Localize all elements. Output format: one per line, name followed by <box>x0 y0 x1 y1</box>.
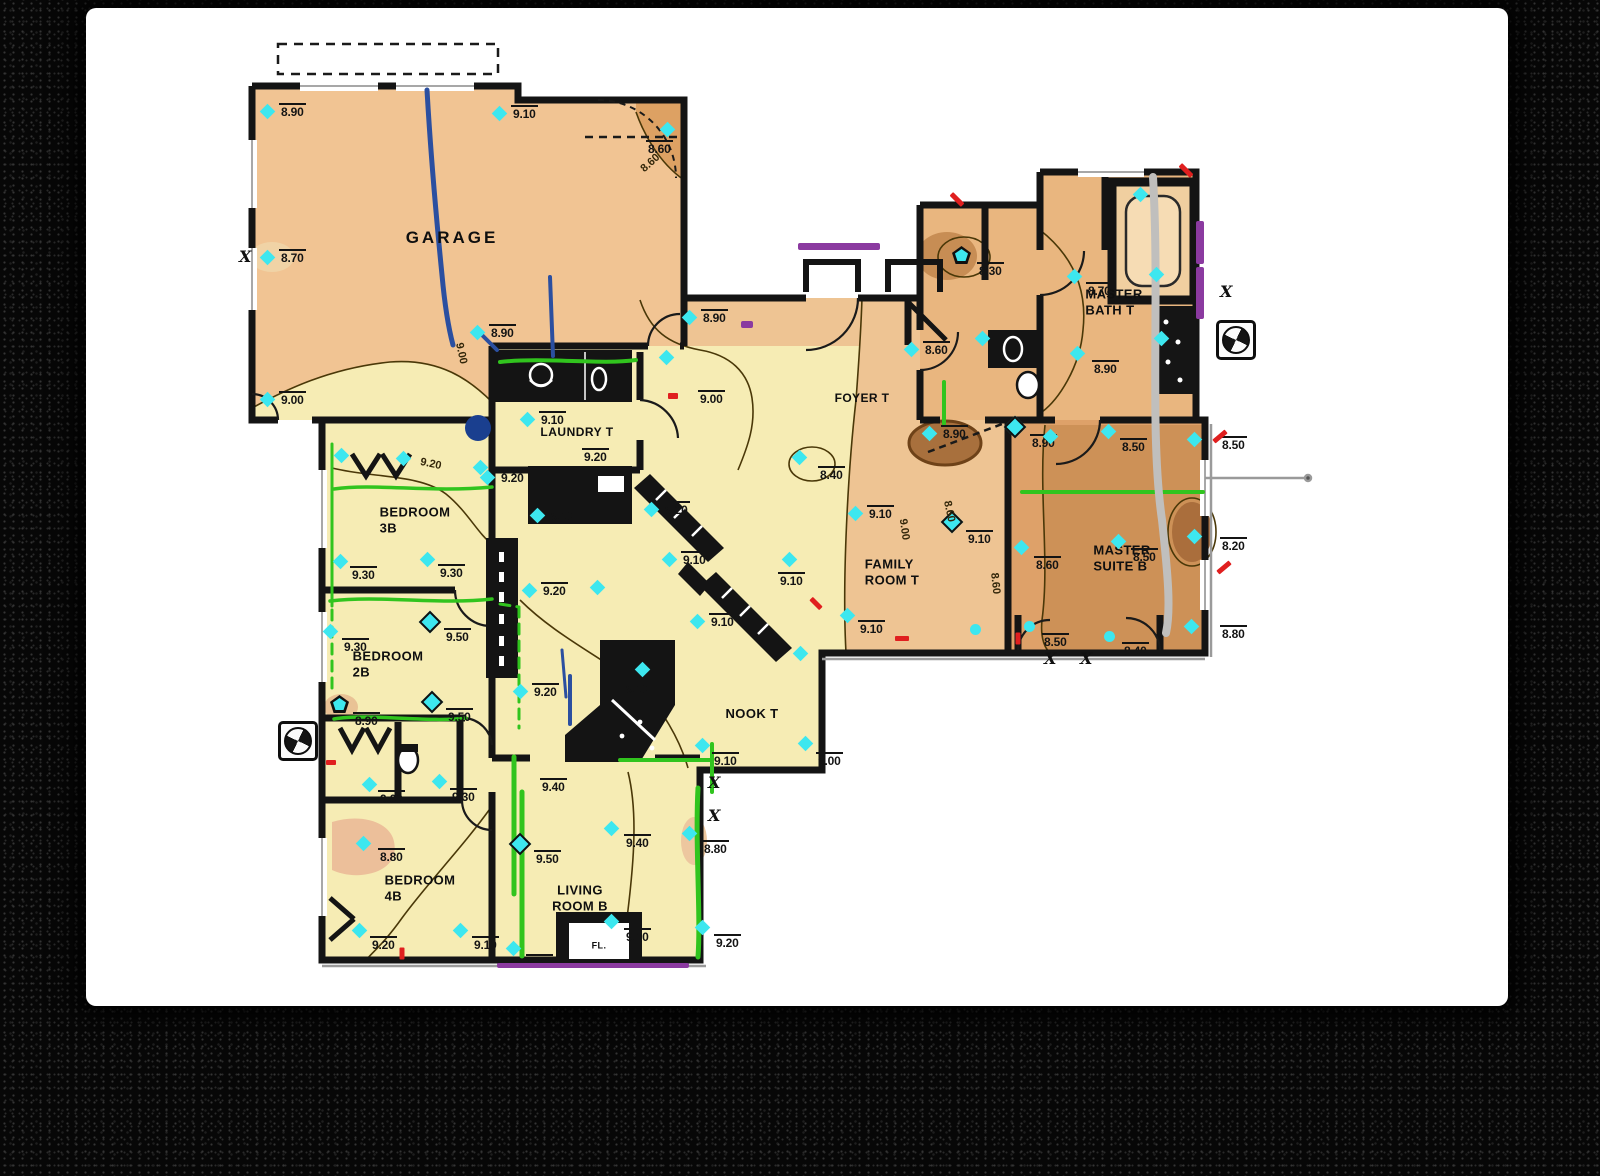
laundry-counter <box>528 466 632 524</box>
scanned-floor-plan-page: GARAGELAUNDRY TBEDROOM 3BBEDROOM 2BBEDRO… <box>0 0 1600 1176</box>
shower-closet <box>1158 306 1196 394</box>
crack-line-green <box>500 360 636 362</box>
blue-dot-marker <box>465 415 491 441</box>
wc-vanity <box>988 330 1038 368</box>
toilet <box>1017 372 1039 398</box>
crack-line-green <box>334 487 492 489</box>
crack-line-green <box>697 788 699 957</box>
floor-plan-drawing <box>0 0 1600 1176</box>
laundry-appliances <box>494 350 632 402</box>
floor-fill-regions <box>250 86 1212 960</box>
crack-line-green <box>330 599 492 601</box>
